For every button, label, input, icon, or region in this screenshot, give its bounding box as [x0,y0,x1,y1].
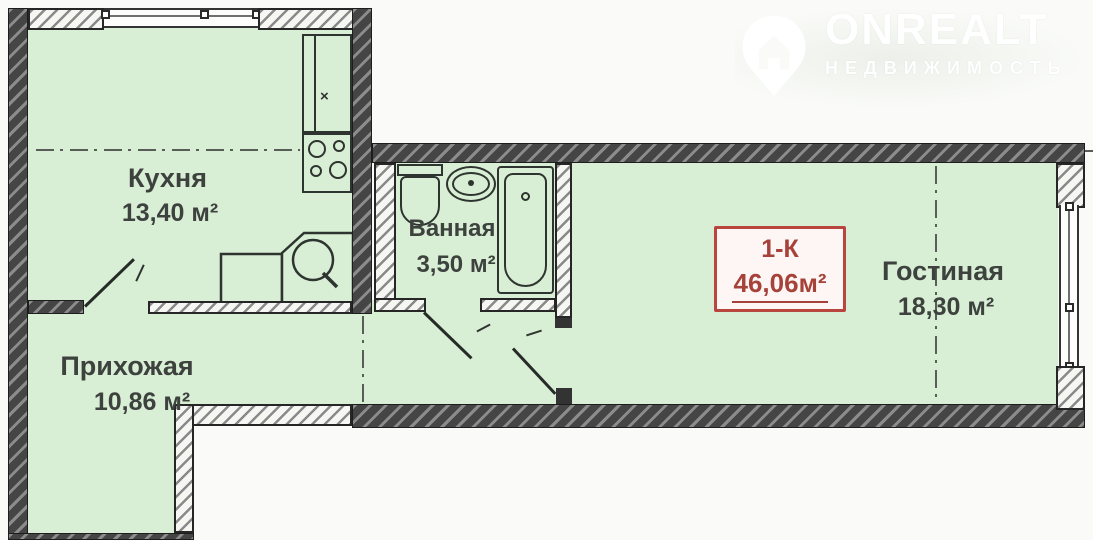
apartment-summary-box: 1-К 46,06м² [714,226,846,312]
window-mullion [200,10,209,19]
wall-top-jamb-right [258,8,354,30]
area-label-hallway: 10,86 м² [84,388,200,417]
wall-corridor-bottom-edge [8,533,194,540]
area-label-kitchen: 13,40 м² [95,199,245,228]
window-mullion [1065,202,1074,211]
wall-kitchen-bottom [148,301,352,314]
cabinet-cross-mark: × [320,88,329,105]
area-label-bathroom: 3,50 м² [406,251,506,279]
wall-right-jamb-bottom [1056,366,1085,410]
cabinet-divider [314,36,316,131]
wall-hallway-bottom [174,404,352,426]
location-pin-house-icon [735,14,813,98]
wall-hallway-top-stub [28,300,84,314]
wall-corridor-right [174,404,194,533]
wall-left-outer [8,8,28,540]
room-label-kitchen: Кухня [100,163,235,194]
burner-small [333,140,345,152]
kitchen-window [104,8,258,28]
bathtub-inner [504,173,547,287]
apartment-type-label: 1-К [761,235,799,264]
wall-top-living [372,143,1085,163]
window-mullion [1065,303,1074,312]
axis-line-hallway [362,316,364,406]
axis-line-right [1085,150,1093,152]
watermark-tagline: НЕДВИЖИМОСТЬ [825,58,1067,79]
stove-icon [302,133,352,193]
washbasin-icon [446,166,496,202]
wall-bottom-outer [352,404,1085,428]
window-glass-line [104,15,258,17]
window-mullion [101,10,110,19]
wall-bathroom-bottom-right [480,298,556,312]
kitchen-sink-icon [218,231,358,307]
corridor-floor [28,410,174,533]
room-label-hallway: Прихожая [60,351,194,382]
window-glass-line [1068,205,1070,368]
room-label-living: Гостиная [876,256,1010,287]
watermark-logo: ONREALT НЕДВИЖИМОСТЬ [735,8,1085,108]
kitchen-cabinet-icon: × [302,34,352,133]
toilet-icon [397,164,443,176]
wall-bathroom-right [555,163,572,318]
axis-line-kitchen [36,149,300,151]
wall-top-jamb-left [28,8,104,30]
burner-small [310,165,322,177]
wall-bathroom-bottom-left [374,298,426,312]
apartment-area-label: 46,06м² [732,268,829,303]
wall-bathroom-left [374,163,396,303]
floor-plan: × [0,0,1093,540]
burner-large [329,161,347,179]
living-window [1059,205,1079,368]
watermark-brand: ONREALT [825,8,1067,52]
burner-large [308,140,326,158]
bathtub-drain [521,192,530,201]
washbasin-tap [468,180,474,186]
area-label-living: 18,30 м² [890,293,1002,322]
wall-kitchen-right [352,8,372,314]
wall-foot [555,318,572,328]
room-label-bathroom: Ванная [402,215,502,243]
